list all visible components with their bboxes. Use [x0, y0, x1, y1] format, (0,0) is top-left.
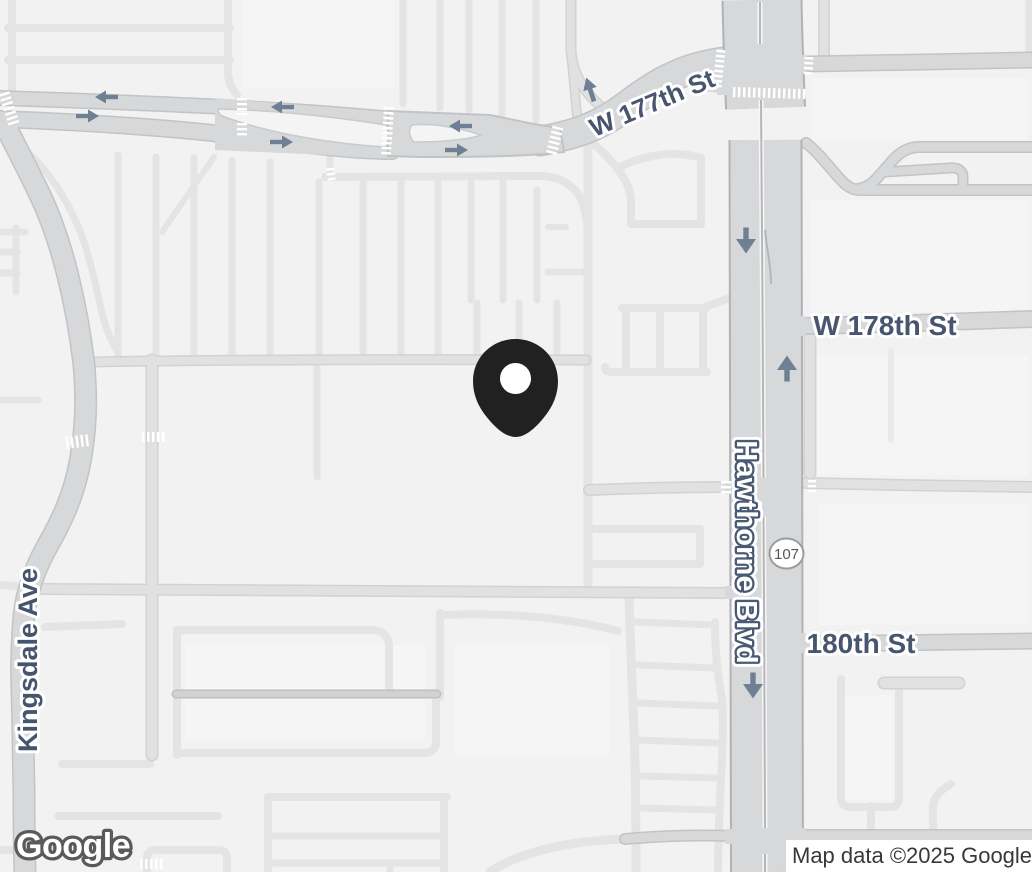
svg-text:W 178th St: W 178th St: [813, 310, 956, 341]
svg-text:Kingsdale Ave: Kingsdale Ave: [13, 568, 43, 752]
svg-text:180th St: 180th St: [807, 628, 916, 659]
svg-text:Google: Google: [16, 827, 130, 865]
svg-text:107: 107: [774, 546, 799, 563]
svg-text:Map data ©2025 Google: Map data ©2025 Google: [792, 843, 1032, 868]
svg-text:Hawthorne Blvd: Hawthorne Blvd: [730, 440, 762, 664]
